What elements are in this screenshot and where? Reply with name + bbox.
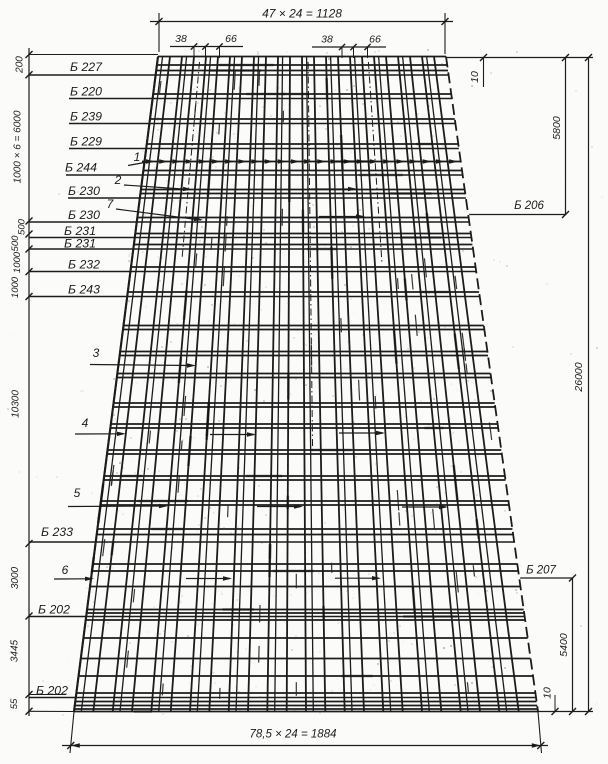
svg-text:Б 243: Б 243 [68,282,100,296]
svg-text:Б 239: Б 239 [70,109,102,123]
svg-text:6: 6 [62,563,69,577]
svg-text:Б 230: Б 230 [68,208,100,222]
svg-text:500: 500 [16,218,27,235]
svg-text:78,5 × 24 = 1884: 78,5 × 24 = 1884 [250,729,337,741]
svg-text:2: 2 [114,173,122,187]
svg-text:Б 233: Б 233 [41,525,73,539]
svg-text:5800: 5800 [551,116,563,140]
svg-text:Б 207: Б 207 [526,565,556,577]
svg-text:Б 230: Б 230 [68,184,100,198]
svg-text:3000: 3000 [10,566,21,589]
svg-text:47 × 24 = 1128: 47 × 24 = 1128 [262,7,342,21]
svg-text:Б 232: Б 232 [68,257,100,271]
svg-text:1000: 1000 [12,251,23,273]
svg-text:Б 231: Б 231 [64,236,96,250]
svg-text:Б 244: Б 244 [65,160,97,174]
svg-text:10300: 10300 [11,390,22,418]
svg-text:500: 500 [10,235,21,252]
svg-text:38: 38 [175,33,187,45]
svg-text:1000 × 6 = 6000: 1000 × 6 = 6000 [13,110,24,183]
svg-text:3: 3 [93,346,100,360]
svg-text:Б 227: Б 227 [70,60,103,74]
svg-text:1: 1 [134,150,141,164]
svg-text:5: 5 [74,486,81,500]
svg-text:4: 4 [82,416,89,430]
svg-text:200: 200 [15,56,26,74]
svg-text:66: 66 [225,33,237,45]
svg-text:26000: 26000 [573,362,585,392]
svg-text:66: 66 [369,34,381,46]
svg-text:Б 202: Б 202 [38,602,70,616]
svg-text:1000: 1000 [10,276,21,298]
svg-text:3445: 3445 [10,639,21,662]
svg-text:38: 38 [321,34,333,46]
svg-text:5400: 5400 [558,633,570,657]
svg-text:Б 229: Б 229 [70,134,102,148]
svg-text:55: 55 [9,698,20,709]
svg-text:10: 10 [542,687,554,699]
svg-text:Б 202: Б 202 [36,683,68,697]
svg-text:10: 10 [469,71,481,83]
svg-text:Б 206: Б 206 [514,200,544,212]
svg-text:Б 220: Б 220 [70,84,102,98]
